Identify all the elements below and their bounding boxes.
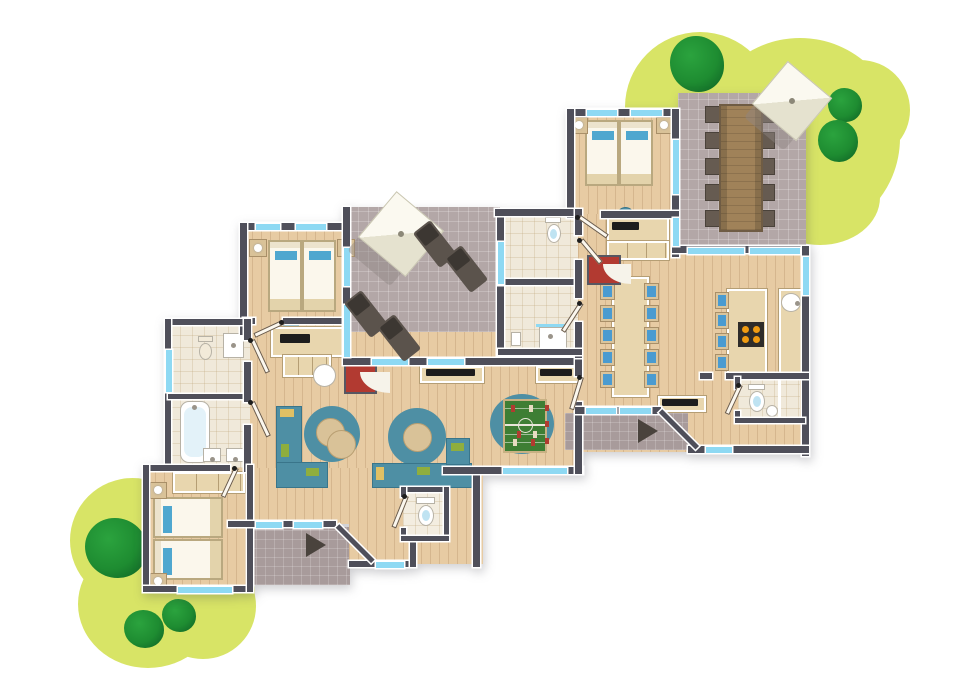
- window: [294, 522, 322, 528]
- window: [706, 447, 732, 453]
- bar-stool: [715, 333, 729, 350]
- wall: [444, 487, 449, 540]
- tv: [540, 369, 572, 376]
- cushion: [280, 409, 294, 417]
- tv: [426, 369, 475, 376]
- wall: [473, 468, 480, 567]
- pouf: [403, 423, 432, 452]
- bed: [268, 240, 302, 312]
- window: [620, 408, 651, 414]
- left-entrance-porch: [247, 527, 350, 585]
- tv: [280, 334, 310, 343]
- bar-stool: [715, 354, 729, 371]
- wall: [567, 109, 679, 116]
- wall: [700, 373, 712, 379]
- window: [376, 562, 404, 568]
- wall: [283, 318, 347, 324]
- window: [166, 350, 172, 392]
- wall: [498, 349, 582, 355]
- wall: [498, 279, 578, 285]
- wall: [575, 209, 582, 235]
- dining-chair: [644, 349, 659, 366]
- window: [631, 110, 662, 116]
- entrance-arrow-icon: [638, 419, 658, 443]
- wall: [165, 319, 250, 325]
- wall: [575, 260, 582, 298]
- dining-chair: [600, 327, 615, 344]
- wall: [143, 465, 149, 592]
- nightstand: [249, 239, 267, 257]
- wall: [410, 537, 416, 567]
- dining-chair: [600, 305, 615, 322]
- window: [586, 408, 616, 414]
- wall: [495, 209, 581, 216]
- window: [296, 224, 326, 230]
- bed: [619, 120, 653, 186]
- window: [498, 242, 504, 284]
- pouf: [327, 430, 356, 459]
- bar-stool: [715, 312, 729, 329]
- wall: [244, 319, 251, 340]
- wall: [401, 487, 449, 492]
- cushion: [281, 444, 289, 457]
- kitchen-sink: [781, 293, 801, 312]
- tv: [612, 222, 639, 230]
- corner-sofa: [276, 462, 328, 488]
- dining-chair: [644, 305, 659, 322]
- wall: [401, 536, 449, 541]
- window: [803, 257, 809, 295]
- wall: [247, 465, 253, 592]
- bar-stool: [715, 292, 729, 309]
- cushion: [306, 468, 319, 476]
- window: [428, 359, 464, 365]
- nightstand: [150, 482, 167, 499]
- window: [673, 140, 679, 194]
- window: [178, 587, 232, 593]
- cushion: [376, 467, 384, 480]
- wall: [168, 394, 248, 399]
- dining-chair: [644, 283, 659, 300]
- cushion: [417, 467, 430, 475]
- washbasin: [766, 405, 778, 417]
- dining-chair: [600, 349, 615, 366]
- nightstand: [656, 117, 673, 134]
- window: [344, 305, 350, 357]
- bath-divider: [778, 380, 781, 420]
- wall: [244, 362, 251, 402]
- wall: [735, 418, 805, 423]
- window: [673, 218, 679, 246]
- bed: [302, 240, 336, 312]
- bed: [153, 497, 223, 538]
- window: [587, 110, 617, 116]
- window: [688, 248, 744, 254]
- dining-chair: [644, 327, 659, 344]
- window: [503, 468, 567, 474]
- washbasin: [511, 332, 521, 346]
- bed: [585, 120, 619, 186]
- window: [256, 522, 282, 528]
- dining-chair: [600, 283, 615, 300]
- entrance-arrow-icon: [306, 533, 326, 557]
- desk-dresser: [607, 216, 669, 244]
- wall: [601, 211, 679, 218]
- window: [256, 224, 280, 230]
- window: [344, 248, 350, 286]
- window: [750, 248, 800, 254]
- floor-plan-canvas: [0, 0, 953, 673]
- dining-chair: [600, 371, 615, 388]
- washbasin: [226, 448, 244, 462]
- wall: [567, 109, 574, 217]
- round-table: [313, 364, 336, 387]
- cushion: [451, 443, 464, 451]
- wall: [143, 465, 230, 471]
- tv: [662, 399, 698, 406]
- washbasin: [203, 448, 221, 462]
- dining-chair: [644, 371, 659, 388]
